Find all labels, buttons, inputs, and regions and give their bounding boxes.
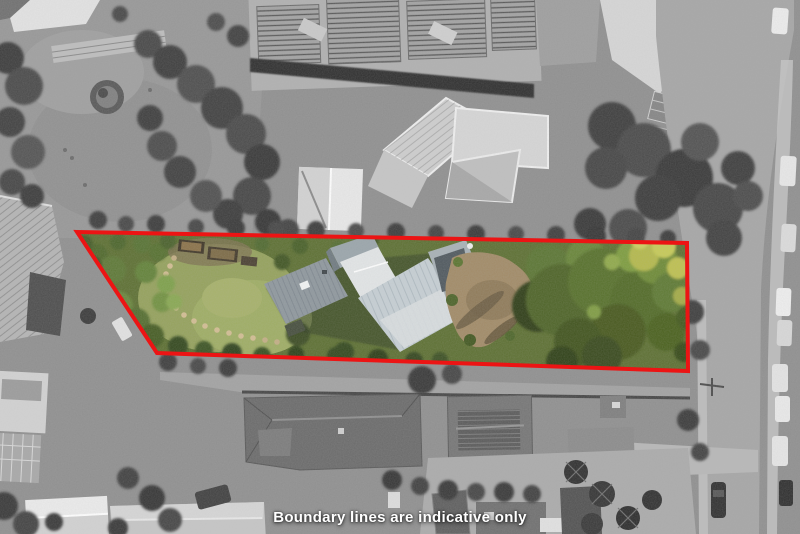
aerial-photo: Boundary lines are indicative only — [0, 0, 800, 534]
aerial-photo-canvas — [0, 0, 800, 534]
photo-grain — [0, 0, 800, 534]
boundary-disclaimer: Boundary lines are indicative only — [0, 509, 800, 526]
